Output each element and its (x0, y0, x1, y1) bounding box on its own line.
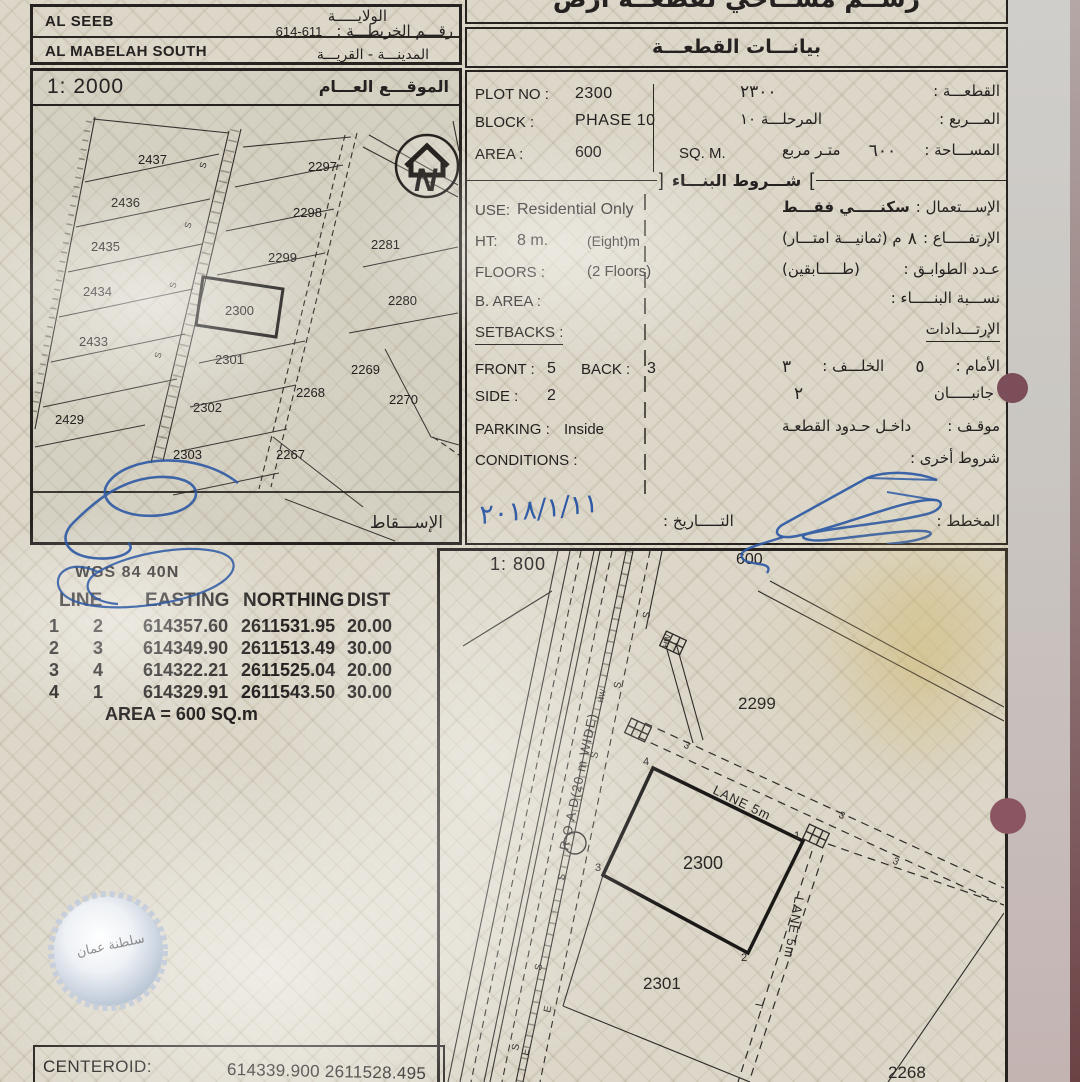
map-plot-label: 2301 (215, 352, 244, 367)
plot-no-row-ar: القطعـــة : ٢٣٠٠ (740, 82, 1000, 102)
block-value-ar: المرحلـــة ١٠ (740, 110, 822, 128)
row-easting: 614349.90 (143, 638, 228, 659)
hole-punch-bottom (990, 798, 1026, 834)
area-value-ar: ٦٠٠ (869, 141, 896, 161)
wilaya-name-en: AL SEEB (45, 13, 114, 30)
map-plot-label: 2280 (388, 293, 417, 308)
floors-value: (2 Floors) (587, 263, 651, 280)
back-label-ar: الخلـــف : (822, 357, 884, 377)
plan-plot-2300: 2300 (683, 853, 723, 873)
height-label-ar: الإرتفـــــاع : (923, 229, 1000, 249)
height-value-ar: ٨ (908, 229, 917, 249)
row-dist: 20.00 (347, 616, 392, 637)
document-title-ar: رســم مســاحي لقطعــة أرض (467, 0, 1006, 13)
date-label-ar: التـــــاريخ : (663, 512, 734, 530)
parking-row-ar: موقـف : داخـل حـدود القطعـة (782, 417, 1000, 435)
height-note: (Eight)m (587, 233, 640, 249)
projection-label-ar: الإســـقاط (370, 513, 443, 533)
svg-text:3: 3 (682, 740, 692, 753)
bracket-right-glyph: ] (657, 170, 666, 191)
svg-text:S: S (167, 281, 178, 290)
parking-label-ar: موقـف : (947, 417, 1000, 435)
svg-text:S: S (533, 962, 545, 971)
svg-text:N: N (414, 162, 438, 198)
svg-text:S: S (641, 610, 653, 619)
centeroid-value: 614339.900 2611528.495 (227, 1060, 427, 1082)
conditions-label-ar: شروط أخرى : (910, 449, 1000, 467)
area-unit-ar: متـر مربع (782, 141, 840, 161)
map-plot-label: 2281 (371, 237, 400, 252)
document-title-strip: رســم مســاحي لقطعــة أرض (465, 0, 1008, 24)
header-rule-left (467, 180, 657, 181)
map-plot-label: 2298 (293, 205, 322, 220)
plan-plot-2268: 2268 (888, 1063, 926, 1082)
back-value-ar: ٣ (782, 357, 791, 377)
area-label: AREA : (475, 146, 523, 163)
site-plan-box: 1: 800 600 (437, 548, 1008, 1082)
row-easting: 614329.91 (143, 682, 228, 703)
lane-top-label: LANE 5m (711, 782, 774, 823)
map-number-row: رقـــم الخريطـــة : 614-611 (276, 22, 453, 40)
area-row-ar: المســـاحة : ٦٠٠ متـر مربع (782, 141, 1000, 161)
seal-graphic: سلطنة عمان (45, 888, 171, 1014)
plot-no-value: 2300 (575, 85, 613, 103)
col-header-dist: DIST (347, 590, 390, 612)
plan-plot-2301: 2301 (643, 974, 681, 993)
side-value: 2 (547, 387, 556, 405)
embossed-seal: سلطنة عمان (45, 888, 171, 1019)
front-value-ar: ٥ (915, 357, 924, 377)
area-value: 600 (575, 144, 602, 162)
barea-label: B. AREA : (475, 293, 541, 310)
svg-text:3: 3 (595, 862, 601, 874)
svg-text:S: S (589, 750, 601, 759)
row-dist: 20.00 (347, 660, 392, 681)
svg-text:3: 3 (891, 856, 901, 869)
scanned-plot-certificate: AL SEEB AL MABELAH SOUTH الولايـــــة رق… (0, 0, 1080, 1082)
parking-label: PARKING : (475, 421, 550, 438)
use-row-ar: الإســـتعمال : سكنـــــي فقـــط (782, 198, 1000, 216)
plot-no-value-ar: ٢٣٠٠ (740, 82, 777, 102)
svg-text:S: S (197, 161, 208, 170)
north-arrow-icon: N (391, 129, 463, 201)
svg-text:E: E (520, 1047, 532, 1056)
map-plot-label: 2434 (83, 284, 112, 299)
building-conditions-title-ar: شـــروط البنـــاء (666, 171, 807, 190)
block-label: BLOCK : (475, 114, 534, 131)
side-value-ar: ٢ (794, 384, 803, 404)
map-plot-label-subject: 2300 (225, 303, 254, 318)
map-plot-label: 2429 (55, 412, 84, 427)
row-from: 3 (49, 660, 59, 681)
area-total-text: AREA = 600 SQ.m (105, 704, 258, 725)
bracket-left-glyph: [ (807, 170, 816, 191)
map-number-label-ar: رقـــم الخريطـــة : (336, 22, 453, 40)
parking-value: Inside (564, 421, 604, 438)
building-conditions-header: ] شـــروط البنـــاء [ (467, 170, 1006, 191)
side-row-ar: جانبـــــان ٢ (794, 384, 994, 404)
map-plot-label: 2436 (111, 195, 140, 210)
divider-dashed (643, 194, 647, 494)
row-to: 1 (93, 682, 103, 703)
svg-text:S: S (152, 351, 163, 360)
row-to: 3 (93, 638, 103, 659)
plan-plot-2299: 2299 (738, 694, 776, 713)
front-back-row-ar: الأمام : ٥ الخلـــف : ٣ (782, 357, 1000, 377)
col-header-northing: NORTHING (243, 590, 344, 612)
height-note-ar: م (ثمانيـــة امتـــار) (782, 229, 902, 249)
height-value: 8 m. (517, 232, 548, 250)
map-plot-label: 2268 (296, 385, 325, 400)
planner-signature (767, 470, 957, 544)
front-label: FRONT : (475, 361, 535, 378)
admin-box: AL SEEB AL MABELAH SOUTH الولايـــــة رق… (30, 4, 462, 65)
city-name-en: AL MABELAH SOUTH (45, 43, 207, 60)
floors-value-ar: (طـــــابقين) (782, 260, 860, 278)
use-label: USE: (475, 202, 510, 219)
row-from: 2 (49, 638, 59, 659)
row-northing: 2611513.49 (241, 638, 335, 659)
floors-label: FLOORS : (475, 264, 545, 281)
plot-no-label: PLOT NO : (475, 86, 549, 103)
side-label-ar: جانبـــــان (934, 384, 994, 404)
back-label: BACK : (581, 361, 630, 378)
pen-tail-mark (705, 535, 795, 581)
area-unit: SQ. M. (679, 145, 726, 162)
height-label: HT: (475, 233, 498, 250)
svg-text:4: 4 (643, 756, 649, 768)
map-plot-label: 2437 (138, 152, 167, 167)
use-value: Residential Only (517, 201, 634, 219)
map-plot-label: 2435 (91, 239, 120, 254)
barea-label-ar: نســـبة البنـــــاء : (891, 289, 1000, 307)
site-plan-drawing: 2299 2300 2301 2268 R O A D(20 m WIDE) L… (440, 551, 1004, 1082)
block-row-ar: المـــربع : المرحلـــة ١٠ (740, 110, 1000, 128)
map-road-marks: S S S S (152, 161, 208, 360)
row-from: 4 (49, 682, 59, 703)
map-panel-header: 1: 2000 الموقـــع العـــام (33, 71, 459, 106)
row-dist: 30.00 (347, 682, 392, 703)
map-plot-label: 2299 (268, 250, 297, 265)
parking-value-ar: داخـل حـدود القطعـة (782, 417, 911, 435)
row-easting: 614322.21 (143, 660, 228, 681)
use-value-ar: سكنـــــي فقـــط (782, 198, 910, 216)
pen-loop-wgs (38, 542, 256, 622)
front-label-ar: الأمام : (956, 357, 1000, 377)
plot-label-ar: القطعـــة : (933, 82, 1000, 102)
row-to: 4 (93, 660, 103, 681)
centeroid-box: CENTEROID: 614339.900 2611528.495 (33, 1045, 445, 1082)
survey-monuments (625, 631, 830, 848)
map-plot-label: 2269 (351, 362, 380, 377)
plot-data-box: PLOT NO : 2300 القطعـــة : ٢٣٠٠ BLOCK : … (465, 70, 1008, 545)
svg-text:E: E (542, 1004, 554, 1013)
side-label: SIDE : (475, 388, 518, 405)
conditions-label: CONDITIONS : (475, 452, 578, 469)
svg-text:HW: HW (661, 633, 673, 648)
svg-text:HW: HW (596, 688, 608, 703)
back-value: 3 (647, 360, 656, 378)
map-plot-label: 2297 (308, 159, 337, 174)
lane-lines (638, 723, 1004, 1082)
map-number-value: 614-611 (276, 22, 323, 40)
row-dist: 30.00 (347, 638, 392, 659)
city-village-label-ar: المدينـــة - القريـــة (317, 47, 429, 63)
height-row-ar: الإرتفـــــاع : ٨ م (ثمانيـــة امتـــار) (782, 229, 1000, 249)
area-label-ar: المســـاحة : (924, 141, 1000, 161)
map-scale-label: 1: 2000 (47, 75, 124, 99)
header-rule-right (816, 180, 1006, 181)
lane-right-label: LANE 5m (781, 895, 807, 959)
front-value: 5 (547, 360, 556, 378)
hole-punch-top (997, 373, 1028, 403)
map-plot-label: 2302 (193, 400, 222, 415)
floors-label-ar: عـدد الطوابـق : (903, 260, 1000, 278)
scan-edge-shadow (1070, 0, 1080, 1082)
floors-row-ar: عـدد الطوابـق : (طـــــابقين) (782, 260, 1000, 278)
use-label-ar: الإســـتعمال : (916, 198, 1000, 216)
road-lines-dashed (471, 551, 650, 1082)
block-value: PHASE 10 (575, 112, 655, 130)
setbacks-label: SETBACKS : (475, 324, 563, 345)
handwritten-date: ٢٠١٨/١/١١ (479, 488, 598, 532)
plot-data-header-box: بيانـــات القطعـــة (465, 27, 1008, 68)
svg-text:S: S (182, 221, 193, 230)
block-label-ar: المـــربع : (939, 110, 1000, 128)
centeroid-label: CENTEROID: (43, 1057, 152, 1077)
svg-text:1: 1 (794, 830, 800, 842)
row-northing: 2611543.50 (241, 682, 335, 703)
map-plot-label: 2270 (389, 392, 418, 407)
svg-text:T: T (752, 1000, 765, 1009)
map-plot-label: 2433 (79, 334, 108, 349)
general-location-label-ar: الموقـــع العـــام (319, 77, 449, 96)
row-northing: 2611525.04 (241, 660, 335, 681)
svg-text:2: 2 (741, 952, 747, 964)
setbacks-label-ar: الإرتـــدادات (926, 320, 1000, 342)
plot-data-title-ar: بيانـــات القطعـــة (467, 36, 1006, 58)
